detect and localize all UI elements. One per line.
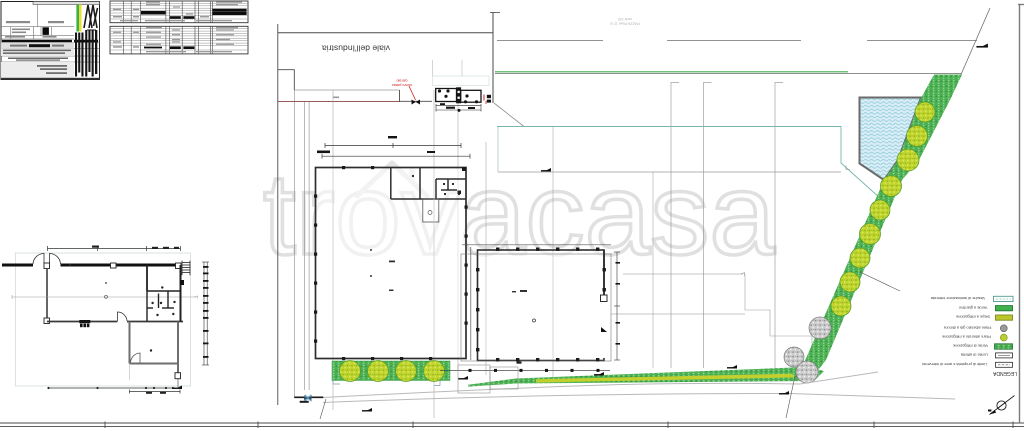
svg-text:Filare alberato già a dimora: Filare alberato già a dimora bbox=[943, 325, 991, 330]
svg-text:Verde a giardino: Verde a giardino bbox=[959, 305, 987, 310]
svg-text:Filare alberato a mitigazione: Filare alberato a mitigazione bbox=[942, 335, 991, 340]
svg-text:serie 120: serie 120 bbox=[618, 17, 632, 21]
svg-text:Vasche di laminazione interrat: Vasche di laminazione interrata bbox=[930, 296, 985, 301]
svg-text:carraio: carraio bbox=[397, 79, 408, 83]
svg-text:viale dell'Industria: viale dell'Industria bbox=[322, 44, 390, 54]
svg-text:Limite di proprietà e aree di: Limite di proprietà e aree di intervento bbox=[922, 362, 987, 367]
svg-text:LEGENDA: LEGENDA bbox=[992, 370, 1017, 376]
svg-text:Siepe a mitigazione: Siepe a mitigazione bbox=[956, 315, 990, 320]
svg-text:PIAZZA Piave 12 m: PIAZZA Piave 12 m bbox=[610, 22, 640, 26]
svg-text:Limite di attività: Limite di attività bbox=[960, 352, 988, 357]
svg-text:Verde di mitigazione: Verde di mitigazione bbox=[953, 344, 988, 349]
